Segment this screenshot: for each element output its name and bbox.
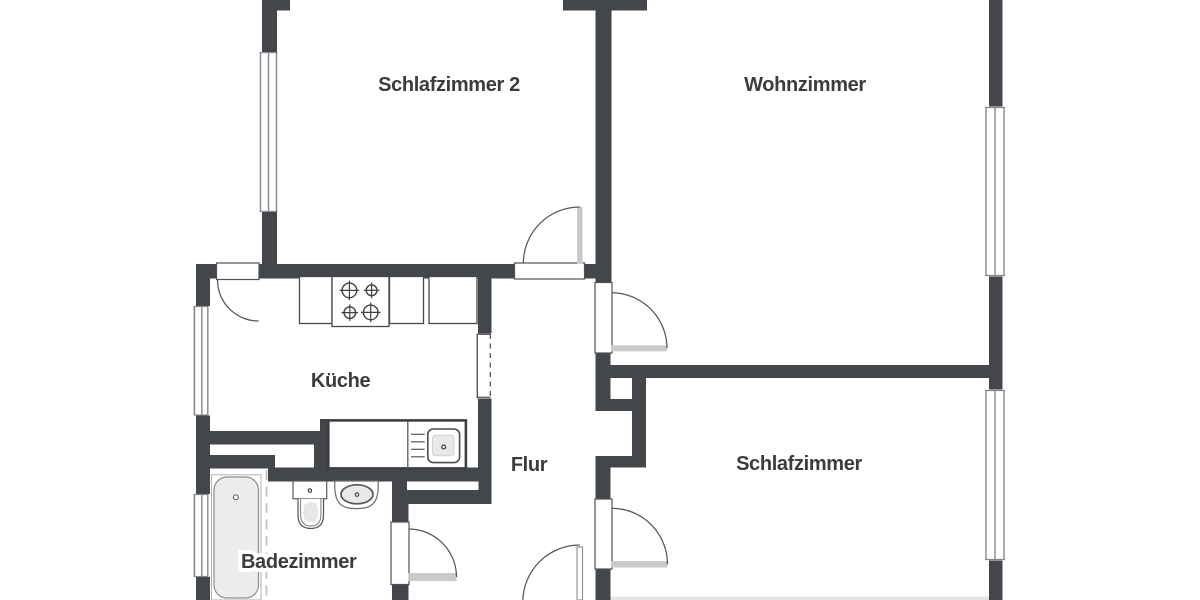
- svg-text:Schlafzimmer 2: Schlafzimmer 2: [378, 74, 520, 96]
- svg-text:Flur: Flur: [511, 454, 548, 476]
- svg-text:Wohnzimmer: Wohnzimmer: [744, 74, 866, 96]
- svg-text:Küche: Küche: [311, 370, 371, 392]
- svg-text:Badezimmer: Badezimmer: [241, 551, 357, 573]
- svg-text:Schlafzimmer: Schlafzimmer: [736, 453, 862, 475]
